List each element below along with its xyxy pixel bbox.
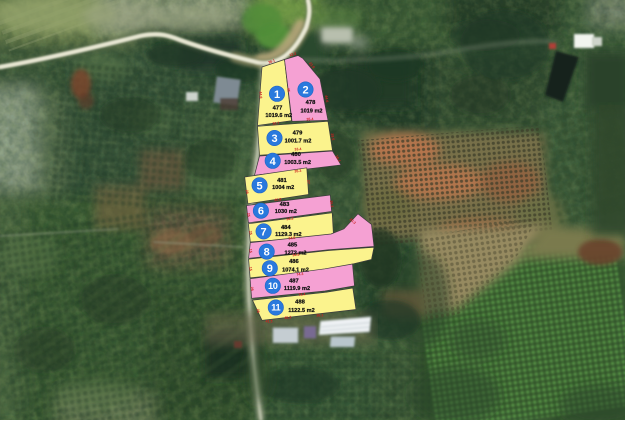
svg-text:485: 485 — [288, 242, 298, 248]
svg-text:7: 7 — [261, 226, 267, 238]
svg-text:3: 3 — [271, 133, 277, 145]
svg-text:35.3: 35.3 — [294, 169, 301, 174]
svg-text:480: 480 — [291, 152, 301, 158]
svg-text:74.4: 74.4 — [298, 292, 305, 297]
svg-text:10: 10 — [268, 281, 278, 291]
svg-text:34.5: 34.5 — [288, 236, 295, 241]
svg-text:11: 11 — [271, 303, 280, 313]
svg-text:41.5: 41.5 — [266, 320, 273, 324]
svg-text:6: 6 — [258, 206, 264, 218]
svg-text:1019 m2: 1019 m2 — [300, 109, 322, 115]
svg-text:4: 4 — [270, 156, 277, 168]
svg-text:484: 484 — [281, 225, 291, 231]
svg-text:1004 m2: 1004 m2 — [272, 185, 294, 191]
svg-text:1003.5 m2: 1003.5 m2 — [284, 160, 311, 166]
svg-text:1119.9 m2: 1119.9 m2 — [284, 286, 310, 292]
svg-text:481: 481 — [277, 178, 287, 184]
svg-text:15: 15 — [248, 249, 253, 254]
svg-text:15: 15 — [248, 267, 253, 272]
svg-text:25: 25 — [250, 287, 255, 292]
svg-text:30.7: 30.7 — [272, 121, 279, 125]
svg-text:8: 8 — [264, 247, 270, 259]
svg-text:1122.5 m2: 1122.5 m2 — [288, 308, 314, 314]
svg-text:25: 25 — [256, 309, 261, 314]
svg-text:487: 487 — [289, 279, 299, 285]
svg-text:478: 478 — [306, 100, 316, 106]
svg-text:486: 486 — [289, 259, 299, 265]
svg-text:25: 25 — [248, 231, 253, 236]
svg-text:25: 25 — [245, 190, 250, 195]
svg-text:9: 9 — [267, 263, 273, 275]
svg-text:477: 477 — [273, 106, 283, 112]
svg-text:25: 25 — [246, 213, 251, 218]
svg-text:1019.6 m2: 1019.6 m2 — [265, 113, 292, 119]
svg-text:35.4: 35.4 — [306, 117, 313, 121]
svg-text:34.5: 34.5 — [292, 253, 299, 258]
svg-text:45.3: 45.3 — [284, 315, 291, 320]
svg-text:44.8: 44.8 — [258, 91, 262, 98]
svg-text:2: 2 — [302, 85, 308, 97]
svg-text:479: 479 — [293, 131, 303, 137]
svg-text:483: 483 — [280, 202, 290, 208]
svg-text:45: 45 — [286, 88, 290, 92]
svg-text:488: 488 — [295, 300, 305, 306]
svg-text:1001.7 m2: 1001.7 m2 — [285, 138, 312, 144]
svg-text:34.3: 34.3 — [286, 216, 293, 221]
svg-text:1030 m2: 1030 m2 — [275, 209, 297, 215]
svg-text:27: 27 — [306, 180, 310, 184]
svg-text:36.1: 36.1 — [316, 313, 323, 318]
svg-text:5: 5 — [257, 180, 263, 192]
svg-text:33.4: 33.4 — [294, 147, 301, 151]
svg-text:74.3: 74.3 — [296, 272, 303, 277]
svg-text:1: 1 — [274, 89, 280, 101]
